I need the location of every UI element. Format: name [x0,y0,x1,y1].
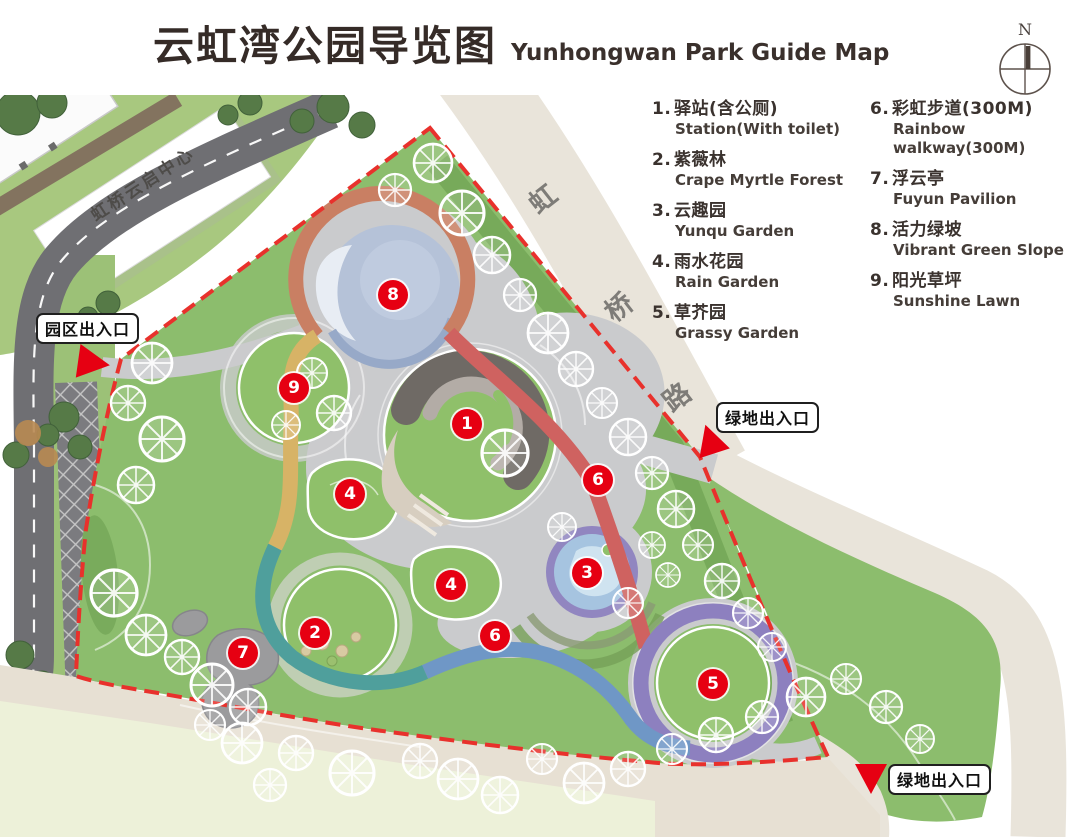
map-marker-4: 4 [436,570,466,600]
entrance-arrow-icon [855,764,887,794]
entrance-label-2: 绿地出入口 [716,402,819,433]
map-marker-2: 2 [300,618,330,648]
legend-item-number: 8. [870,220,892,241]
legend-item-cn: 7.浮云亭 [870,169,1080,190]
legend-item-7: 7.浮云亭Fuyun Pavilion [870,169,1080,209]
legend-item-en: Sunshine Lawn [893,292,1080,311]
legend-item-cn: 5.草芥园 [652,303,852,324]
legend-item-name: 阳光草坪 [892,271,962,291]
legend-item-number: 7. [870,169,892,190]
legend-item-name: 草芥园 [674,303,727,323]
legend-item-number: 2. [652,150,674,171]
map-marker-6: 6 [480,621,510,651]
legend-item-name: 云趣园 [674,201,727,221]
legend-item-number: 9. [870,271,892,292]
map-marker-3: 3 [572,558,602,588]
legend-item-name: 浮云亭 [892,169,945,189]
legend-item-en: Rainbow walkway(300M) [893,120,1080,158]
header: 云虹湾公园导览图 Yunhongwan Park Guide Map [153,26,889,67]
legend-item-4: 4.雨水花园Rain Garden [652,252,852,292]
legend-item-en: Fuyun Pavilion [893,190,1080,209]
legend-item-en: Grassy Garden [675,324,852,343]
entrance-label-3: 绿地出入口 [888,764,991,795]
legend-item-number: 6. [870,99,892,120]
legend-item-3: 3.云趣园Yunqu Garden [652,201,852,241]
map-marker-4: 4 [335,479,365,509]
legend-item-cn: 2.紫薇林 [652,150,852,171]
legend-item-1: 1.驿站(含公厕)Station(With toilet) [652,99,852,139]
entrance-arrow-icon [76,344,112,382]
legend-item-cn: 1.驿站(含公厕) [652,99,852,120]
legend-item-number: 4. [652,252,674,273]
legend-item-en: Rain Garden [675,273,852,292]
compass-icon [996,38,1054,96]
legend-item-8: 8.活力绿坡Vibrant Green Slope [870,220,1080,260]
legend-item-name: 紫薇林 [674,150,727,170]
map-marker-6: 6 [583,465,613,495]
legend-item-en: Yunqu Garden [675,222,852,241]
legend-item-cn: 9.阳光草坪 [870,271,1080,292]
legend: 1.驿站(含公厕)Station(With toilet)2.紫薇林Crape … [652,99,1080,354]
legend-item-cn: 3.云趣园 [652,201,852,222]
legend-item-5: 5.草芥园Grassy Garden [652,303,852,343]
page-title: 云虹湾公园导览图 [153,26,497,67]
park-guide-map-page: 云虹湾公园导览图 Yunhongwan Park Guide Map N 1.驿… [0,0,1080,837]
map-marker-5: 5 [698,669,728,699]
legend-item-name: 活力绿坡 [892,220,962,240]
legend-item-number: 1. [652,99,674,120]
legend-column-2: 6.彩虹步道(300M)Rainbow walkway(300M)7.浮云亭Fu… [870,99,1080,354]
legend-item-name: 彩虹步道(300M) [892,99,1033,119]
legend-item-cn: 8.活力绿坡 [870,220,1080,241]
map-marker-9: 9 [279,373,309,403]
legend-item-9: 9.阳光草坪Sunshine Lawn [870,271,1080,311]
legend-item-name: 雨水花园 [674,252,744,272]
compass: N [994,22,1056,100]
map-marker-7: 7 [228,638,258,668]
page-subtitle: Yunhongwan Park Guide Map [511,42,889,65]
map-marker-1: 1 [452,409,482,439]
map-marker-8: 8 [378,280,408,310]
legend-item-number: 3. [652,201,674,222]
legend-item-number: 5. [652,303,674,324]
entrance-label-1: 园区出入口 [36,313,139,344]
legend-item-en: Vibrant Green Slope [893,241,1080,260]
legend-item-cn: 6.彩虹步道(300M) [870,99,1080,120]
legend-item-cn: 4.雨水花园 [652,252,852,273]
legend-item-name: 驿站(含公厕) [674,99,778,119]
legend-item-en: Station(With toilet) [675,120,852,139]
compass-north-label: N [994,22,1056,38]
legend-item-6: 6.彩虹步道(300M)Rainbow walkway(300M) [870,99,1080,158]
legend-item-en: Crape Myrtle Forest [675,171,852,190]
legend-item-2: 2.紫薇林Crape Myrtle Forest [652,150,852,190]
legend-column-1: 1.驿站(含公厕)Station(With toilet)2.紫薇林Crape … [652,99,852,354]
